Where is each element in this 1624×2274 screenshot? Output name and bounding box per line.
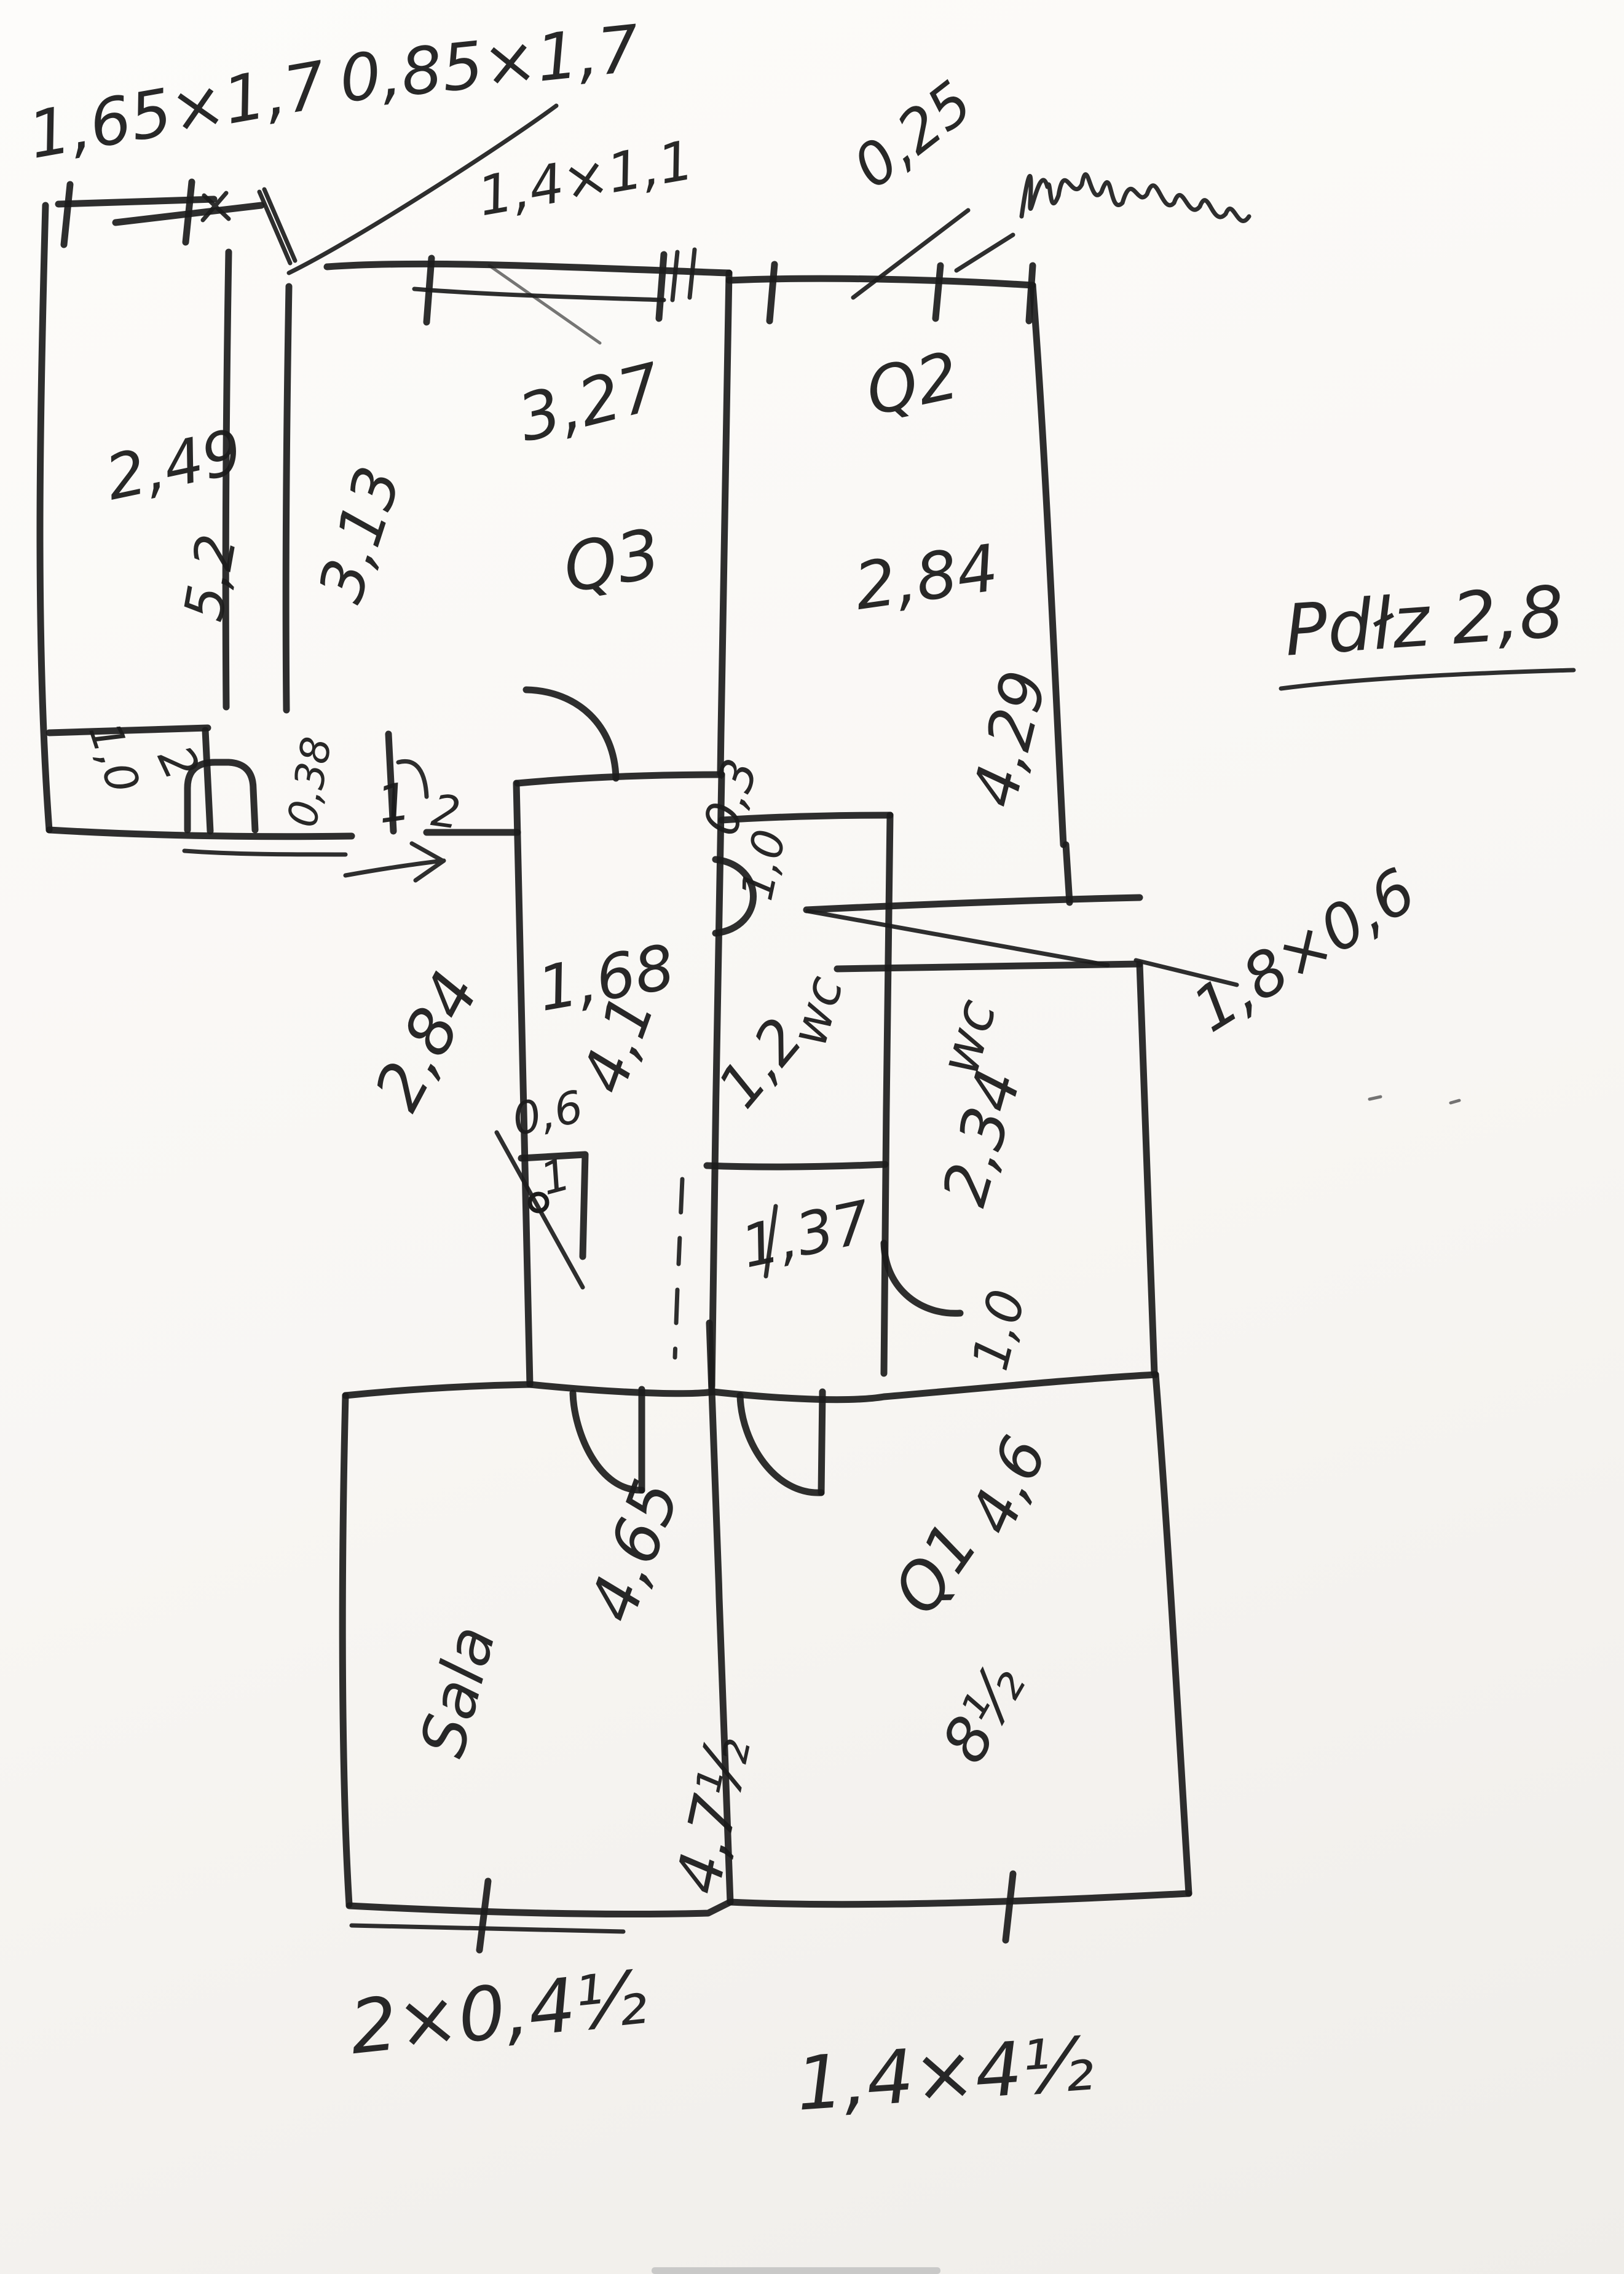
wall-hall-bottom bbox=[530, 1375, 1156, 1400]
entry-1: 1 bbox=[374, 771, 415, 835]
dimension-tick bbox=[1006, 1874, 1013, 1940]
wc2-door-dim: 1,0 bbox=[961, 1284, 1037, 1376]
wall-left-room-bottom bbox=[49, 830, 352, 837]
wall-tick bbox=[936, 266, 940, 318]
room-mid-width: 3,27 bbox=[511, 349, 668, 457]
wall-q2-bottom bbox=[806, 898, 1140, 910]
wall-right-middle bbox=[1140, 964, 1154, 1373]
wall-mid-top bbox=[327, 264, 729, 273]
room-br-width: 4,6 bbox=[956, 1426, 1062, 1545]
room-bl-width: 4,65 bbox=[575, 1471, 695, 1631]
dim-025: 0,25 bbox=[841, 68, 985, 202]
double-wall-right bbox=[286, 286, 289, 710]
room-tr-name: Q2 bbox=[860, 338, 966, 430]
illegible-scribble: (illegible scribble) bbox=[1022, 175, 1249, 221]
wall-sala-top bbox=[345, 1384, 530, 1396]
dim-14x11: 1,4×1,1 bbox=[473, 128, 698, 229]
dashed-partition bbox=[679, 1179, 682, 1264]
hall-left-dim: 2,84 bbox=[360, 960, 493, 1122]
closet-06: 0,6 bbox=[508, 1081, 587, 1146]
wall-wc1-right bbox=[884, 815, 890, 1373]
wc1-bottom-dim: 1,37 bbox=[735, 1188, 877, 1282]
wall-038: 0,38 bbox=[278, 733, 341, 831]
wall-sala-bottom bbox=[349, 1902, 730, 1914]
dimension-tick bbox=[479, 1881, 488, 1950]
wall-left-room-bottom-double bbox=[184, 851, 345, 855]
corner-connector bbox=[259, 189, 295, 263]
wall-q3-q2-divider bbox=[720, 273, 729, 773]
fixture-outline bbox=[187, 762, 255, 830]
paper-speck bbox=[1370, 1097, 1459, 1103]
room-tl-height: 5,2 bbox=[171, 530, 249, 626]
room-mid-name: Q3 bbox=[558, 514, 666, 608]
dim-165x17: 1,65×1,7 bbox=[23, 47, 332, 173]
dimension-tick bbox=[64, 184, 70, 245]
wall-wc1-bottom bbox=[707, 1164, 885, 1167]
dim-bottom-left: 2×0,4½ bbox=[346, 1955, 651, 2071]
arrow-entry bbox=[345, 843, 444, 880]
wc2-height: 2,34 bbox=[928, 1062, 1035, 1213]
room-tr-width: 2,84 bbox=[850, 531, 1003, 625]
room-mid-left-dim: 3,13 bbox=[304, 458, 415, 610]
scan-edge bbox=[652, 2267, 940, 2274]
door-arc-wc2 bbox=[884, 1243, 960, 1313]
floor-plan-sketch: (illegible scribble) 1,65×1,7 0,85×1,7 1… bbox=[0, 0, 1624, 2274]
diagonal-niche bbox=[808, 911, 1108, 965]
alcove-right-wall bbox=[205, 730, 210, 831]
alcove-2: 2 bbox=[146, 737, 210, 788]
sketch-linework: (illegible scribble) bbox=[40, 106, 1574, 2274]
window-tick-double bbox=[672, 250, 695, 300]
note-underline bbox=[1281, 670, 1574, 689]
room-bl-bottom-dim: 4,7½ bbox=[661, 1731, 765, 1900]
wall-sala-bottom-double bbox=[352, 1925, 623, 1932]
room-bl-name: Sala bbox=[406, 1619, 509, 1764]
door-leaf bbox=[821, 1392, 822, 1493]
wall-left-outer bbox=[40, 205, 49, 830]
dim-18x06: 1,8×0,6 bbox=[1180, 855, 1428, 1046]
window-tick bbox=[659, 255, 664, 318]
dim-085x17: 0,85×1,7 bbox=[336, 11, 643, 117]
wall-wc2-top bbox=[837, 964, 1140, 969]
window-diagonal bbox=[489, 266, 600, 343]
dashed-partition bbox=[675, 1290, 677, 1357]
window-double-line bbox=[414, 289, 664, 300]
room-tr-height: 4,29 bbox=[958, 663, 1061, 813]
wall-hall-left bbox=[516, 783, 530, 1384]
wall-tick bbox=[770, 264, 775, 321]
window-tick bbox=[427, 258, 432, 322]
door-arc-hall-top bbox=[526, 690, 616, 778]
wall-q1-right bbox=[1156, 1375, 1189, 1893]
dim-bottom-right: 1,4×4½ bbox=[794, 2021, 1097, 2127]
wall-q1-bottom bbox=[730, 1893, 1189, 1905]
leader-scribble bbox=[956, 235, 1013, 270]
handwritten-labels: 1,65×1,7 0,85×1,7 1,4×1,1 0,25 Pdłz 2,8 … bbox=[23, 11, 1566, 2128]
wall-stub bbox=[1066, 845, 1070, 902]
wall-hall-top bbox=[518, 775, 722, 783]
wall-sala-left bbox=[342, 1396, 349, 1905]
note-ceiling-height: Pdłz 2,8 bbox=[1282, 570, 1567, 672]
door-swing bbox=[740, 1396, 821, 1493]
room-br-bottom-dim: 8½ bbox=[928, 1653, 1039, 1775]
room-br-name: Q1 bbox=[879, 1509, 993, 1627]
